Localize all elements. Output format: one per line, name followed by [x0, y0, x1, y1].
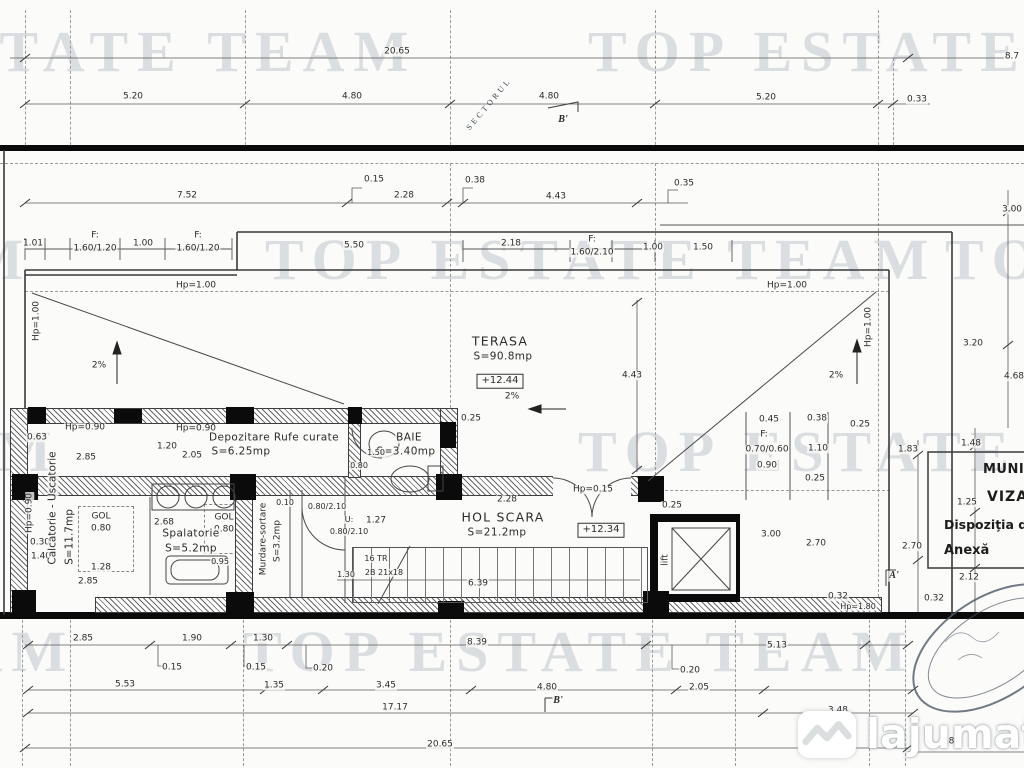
dim-label: 0.25 — [804, 474, 826, 483]
dim-label: 0.20 — [679, 666, 701, 675]
dim-label: GOL — [90, 512, 111, 521]
dim-label: 0.33 — [906, 95, 928, 104]
room-label: TERASA — [471, 334, 529, 347]
dim-label: 1.48 — [960, 439, 982, 448]
dim-label: Calcatorie - Uscatorie — [47, 450, 58, 565]
dim-label: 4.80 — [341, 92, 363, 101]
dim-label: F: — [193, 231, 203, 240]
dim-label: 2.68 — [153, 518, 175, 527]
dim-label: 8.7 — [1004, 52, 1020, 61]
dim-label: 1.00 — [642, 243, 664, 252]
floor-plan-page: TOP ESTATE TEAM TOP ESTATE TEAM TOP ESTA… — [0, 0, 1024, 768]
dim-label: 1.90 — [181, 634, 203, 643]
room-label: HOL SCARA — [461, 510, 546, 523]
dim-label: 0.15 — [245, 663, 267, 672]
dim-label: 1.30 — [252, 634, 274, 643]
room-label: S=21.2mp — [467, 527, 528, 538]
dim-label: Hp=1.00 — [766, 281, 808, 290]
dim-label: 0.32 — [827, 592, 849, 601]
dim-label: 1.30 — [336, 571, 356, 579]
dim-label: 4.43 — [545, 192, 567, 201]
dim-label: 0.80 — [349, 462, 369, 470]
dim-label: 7.52 — [176, 191, 198, 200]
dim-label: 2.28 — [496, 495, 518, 504]
dim-label: 5.13 — [766, 641, 788, 650]
dim-label: 2.05 — [688, 683, 710, 692]
dim-label: 1.00 — [132, 239, 154, 248]
dim-label: 2.18 — [500, 239, 522, 248]
dim-label: 1.20 — [156, 442, 178, 451]
dim-label: 4.80 — [536, 683, 558, 692]
room-label: Depozitare Rufe curate — [208, 432, 340, 443]
logo-mountain-icon — [798, 711, 856, 758]
dim-label: 3.00 — [760, 530, 782, 539]
dim-label: 1.28 — [90, 563, 112, 572]
dim-label: 1.01 — [22, 239, 44, 248]
dim-label: 6.39 — [467, 579, 489, 588]
dim-label: 1.60/1.20 — [175, 244, 220, 253]
dim-label: 4.68 — [1003, 372, 1024, 381]
dim-label: 1.50 — [692, 243, 714, 252]
dim-label: S=11.7mp — [64, 508, 75, 566]
dim-label: F: — [90, 231, 100, 240]
dim-label: 0.95 — [210, 558, 230, 566]
section-marker: B' — [552, 696, 563, 707]
room-label: S=90.8mp — [473, 351, 534, 362]
dim-label: 20.65 — [426, 740, 454, 749]
dim-label: 2% — [504, 392, 520, 401]
dim-label: 5.20 — [122, 92, 144, 101]
dim-label: 1.10 — [807, 444, 829, 453]
dim-label: 1.60/2.10 — [569, 248, 614, 257]
dim-label: 1.60/1.20 — [72, 244, 117, 253]
room-label: Spalatorie — [161, 528, 220, 539]
stamp-line: VIZAT — [987, 489, 1024, 505]
room-label: S=5.2mp — [164, 543, 218, 554]
dim-label: 0.35 — [673, 179, 695, 188]
dim-label: Murdare-sortare — [259, 502, 268, 577]
dim-label: Hp=0.90 — [64, 423, 106, 432]
dim-label: 1.83 — [897, 445, 919, 454]
dim-label: 16 TR — [363, 555, 388, 563]
dim-label: 2% — [828, 371, 844, 380]
dim-label: 0.25 — [849, 420, 871, 429]
dim-label: lift — [661, 553, 670, 567]
section-marker: B' — [557, 115, 568, 126]
logo-name: lajumate — [866, 710, 1024, 758]
dim-label: 3.45 — [375, 681, 397, 690]
dim-label: Hp=1.00 — [864, 306, 873, 348]
dim-label: 0.38 — [806, 414, 828, 423]
dim-label: 5.20 — [755, 93, 777, 102]
dim-label: 0.63 — [26, 433, 48, 442]
dim-label: 0.15 — [161, 663, 183, 672]
dim-label: 8.39 — [466, 638, 488, 647]
dim-label: Hp=0.15 — [572, 485, 614, 494]
dim-label: 3.20 — [962, 339, 984, 348]
room-label: S=6.25mp — [211, 446, 272, 457]
dim-label: 2.70 — [805, 539, 827, 548]
dim-label: 5.50 — [343, 241, 365, 250]
dim-label: S=3.2mp — [273, 519, 282, 563]
dim-label: 17.17 — [381, 703, 409, 712]
dim-label: 4.43 — [621, 371, 643, 380]
dim-label: 0.15 — [363, 175, 385, 184]
dim-label: 0.80 — [90, 524, 112, 533]
dim-label: 4.80 — [538, 92, 560, 101]
dim-label: Hp=1.80 — [839, 603, 877, 611]
dim-label: 0.25 — [661, 501, 683, 510]
dim-label: 5.53 — [114, 680, 136, 689]
dim-label: 2% — [91, 361, 107, 370]
dim-label: GOL — [213, 513, 234, 522]
dim-label: Hp=1.00 — [175, 281, 217, 290]
dim-label: 2.85 — [77, 577, 99, 586]
dim-label: 2.28 — [393, 191, 415, 200]
dim-label: U: — [344, 516, 355, 524]
dim-label: +12.34 — [577, 523, 624, 538]
section-marker: A' — [888, 571, 899, 582]
room-label: BAIE — [395, 432, 423, 443]
dim-label: Hp=1.00 — [32, 300, 41, 342]
dim-label: Hp=0.90 — [25, 492, 34, 534]
dim-label: 2.70 — [901, 542, 923, 551]
stamp-line: Dispoziţia de — [944, 517, 1024, 532]
dim-label: 0.32 — [923, 594, 945, 603]
dim-label: 0.90 — [756, 461, 778, 470]
dim-label: 0.25 — [460, 414, 482, 423]
dim-label: F: — [759, 430, 769, 439]
dim-label: 0.70/0.60 — [744, 445, 789, 454]
dim-label: 1.35 — [263, 681, 285, 690]
stamp-line: MUNICIPIUL — [983, 462, 1024, 477]
dim-label: 0.10 — [275, 499, 295, 507]
dim-label: 0.45 — [758, 415, 780, 424]
site-logo: lajumate .ro — [798, 710, 1024, 758]
dim-label: 0.20 — [312, 664, 334, 673]
dim-label: 2.85 — [75, 453, 97, 462]
dim-label: 0.80/2.10 — [307, 503, 347, 511]
dim-label: F: — [587, 235, 597, 244]
dim-label: +12.44 — [476, 374, 523, 389]
dim-label: 3.00 — [1001, 205, 1023, 214]
seal-text: SECTORULSECTORUL — [381, 76, 514, 232]
dim-label: 2.05 — [181, 451, 203, 460]
dim-label: 0.38 — [464, 176, 486, 185]
dim-label: 2B 21x18 — [364, 569, 404, 577]
dim-label: 2.12 — [958, 573, 980, 582]
stamp-line: Anexă — [944, 543, 989, 558]
dim-label: 1.27 — [365, 516, 387, 525]
dim-label: 20.65 — [383, 47, 411, 56]
dim-label: 2.85 — [72, 634, 94, 643]
dim-label: 1.50 — [366, 449, 386, 457]
dim-label: 0.80/2.10 — [329, 528, 369, 536]
